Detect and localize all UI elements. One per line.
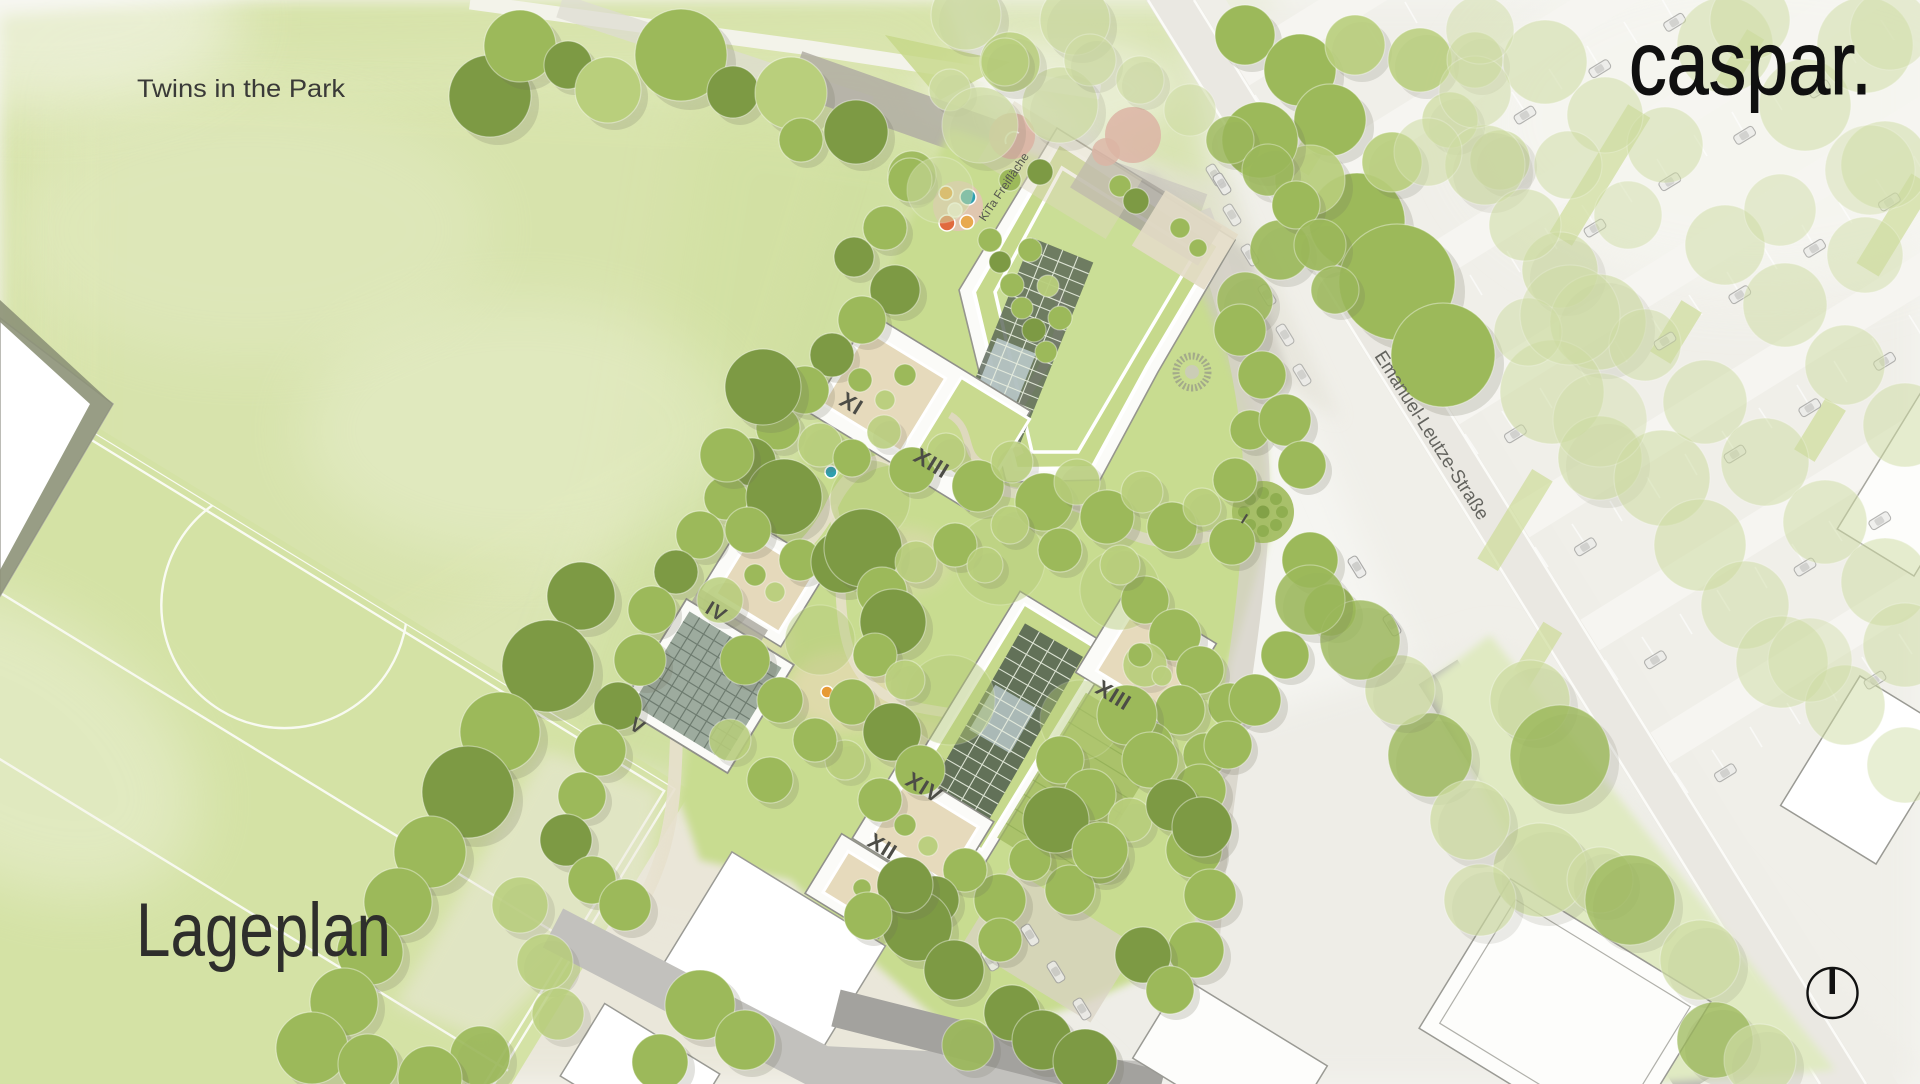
svg-text:Lageplan: Lageplan	[136, 888, 391, 973]
svg-text:caspar.: caspar.	[1629, 14, 1872, 114]
svg-text:Twins in the Park: Twins in the Park	[137, 75, 346, 103]
